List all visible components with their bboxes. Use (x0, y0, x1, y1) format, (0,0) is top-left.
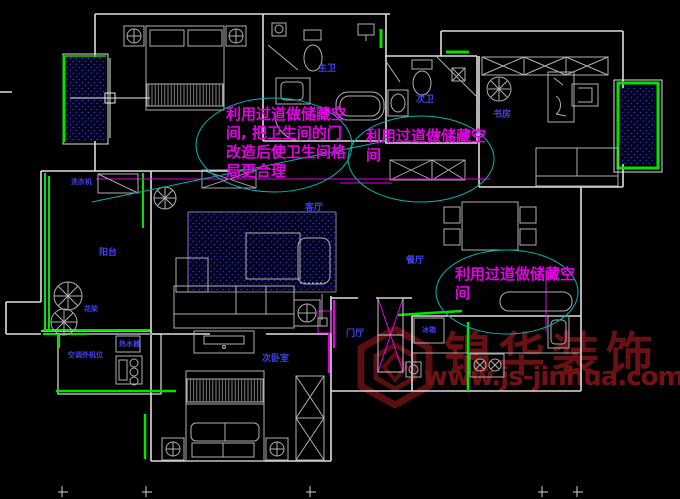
room-label-second-bedroom: 次卧室 (262, 354, 289, 364)
label-water-heater: 热水器 (119, 340, 140, 348)
room-label-balcony: 阳台 (99, 248, 117, 258)
annotation-line: 间 (366, 146, 486, 165)
room-label-master-bath: 主卫 (318, 64, 336, 74)
second-bath-fixtures (385, 56, 476, 116)
room-label-dining: 餐厅 (406, 256, 424, 266)
annotation-line: 间 (455, 284, 575, 303)
label-ac-outdoor-unit: 空调外机位 (68, 351, 103, 359)
chair (444, 229, 460, 245)
second-bedroom-furniture (162, 331, 324, 461)
annotation-line: 局更合理 (226, 162, 346, 181)
stove (470, 354, 504, 377)
window-hatch-study (621, 86, 655, 165)
label-plant-rack: 花架 (84, 305, 98, 313)
living-room-carpet (188, 212, 336, 292)
dimension-ticks (58, 486, 583, 497)
annotation-middle: 利用过道做储藏空 间 (366, 127, 486, 165)
toilet-tank (304, 30, 321, 40)
master-bedroom-furniture (124, 26, 246, 110)
dining-table (462, 202, 518, 250)
desk-chair (554, 78, 566, 116)
blanket (187, 379, 263, 402)
gas-meter (406, 362, 421, 377)
toilet-tank (412, 60, 432, 69)
label-washer: 洗衣机 (71, 178, 92, 186)
annotation-left: 利用过道做储藏空 间, 把卫生间的门 改造后使卫生间格 局更合理 (226, 105, 346, 181)
shower-head-icon (358, 24, 374, 35)
chair (520, 229, 536, 245)
cad-canvas[interactable]: 锦华装饰 www.js-jinhua.com (0, 0, 680, 499)
room-label-living: 客厅 (305, 203, 323, 213)
pillow (150, 30, 184, 46)
room-label-second-bath: 次卫 (416, 95, 434, 105)
tv (204, 336, 244, 344)
window-hatch-master (66, 57, 106, 142)
study-furniture (482, 57, 618, 186)
corner-shelf (268, 45, 298, 70)
room-label-foyer: 门厅 (346, 329, 364, 339)
shower-corner (436, 56, 476, 96)
blanket (147, 84, 223, 106)
label-fridge: 冰箱 (422, 326, 436, 334)
annotation-line: 利用过道做储藏空 (455, 265, 575, 284)
annotation-line: 利用过道做储藏空 (366, 127, 486, 146)
ac-unit-bay (58, 334, 161, 394)
annotation-line: 间, 把卫生间的门 (226, 124, 346, 143)
side-table (572, 84, 598, 106)
room-label-study: 书房 (493, 110, 511, 120)
annotation-line: 改造后使卫生间格 (226, 143, 346, 162)
annotation-right: 利用过道做储藏空 间 (455, 265, 575, 303)
annotation-line: 利用过道做储藏空 (226, 105, 346, 124)
chair (520, 207, 536, 223)
chair (444, 207, 460, 223)
toilet-icon (413, 71, 431, 95)
pillow (188, 30, 222, 46)
